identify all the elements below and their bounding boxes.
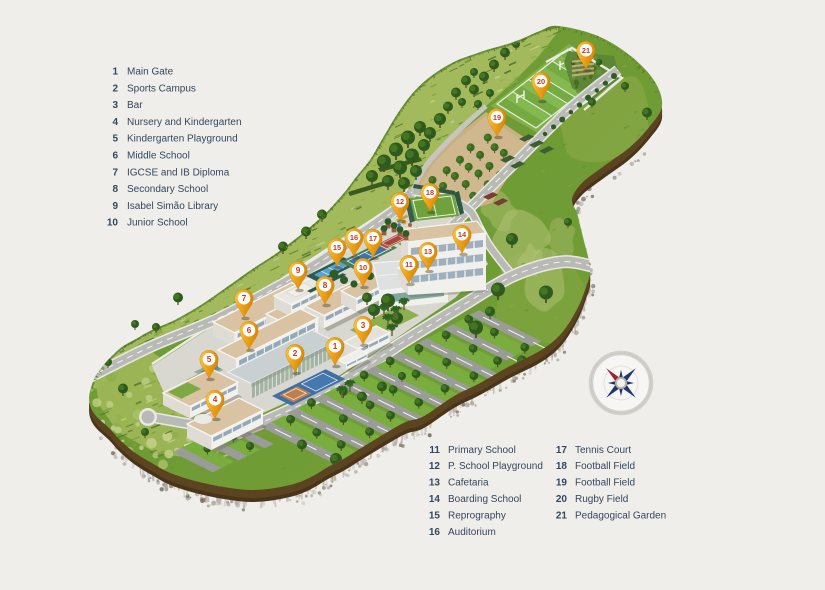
svg-text:3: 3 — [112, 100, 118, 111]
svg-text:15: 15 — [429, 510, 441, 521]
svg-text:Nursery and Kindergarten: Nursery and Kindergarten — [127, 117, 242, 128]
svg-text:9: 9 — [112, 201, 118, 212]
svg-text:17: 17 — [556, 445, 568, 456]
svg-text:18: 18 — [426, 188, 434, 197]
svg-text:10: 10 — [107, 218, 119, 229]
svg-text:Middle School: Middle School — [127, 151, 190, 162]
svg-text:Football Field: Football Field — [575, 478, 635, 489]
svg-text:Secondary School: Secondary School — [127, 184, 208, 195]
svg-text:19: 19 — [493, 113, 501, 122]
svg-text:1: 1 — [333, 342, 338, 351]
svg-text:15: 15 — [333, 243, 341, 252]
svg-text:4: 4 — [112, 117, 118, 128]
svg-text:Boarding School: Boarding School — [448, 494, 521, 505]
svg-text:IGCSE and IB Diploma: IGCSE and IB Diploma — [127, 167, 230, 178]
svg-text:16: 16 — [429, 527, 441, 538]
svg-text:Reprography: Reprography — [448, 510, 506, 521]
svg-text:Kindergarten Playground: Kindergarten Playground — [127, 134, 238, 145]
svg-text:Rugby Field: Rugby Field — [575, 494, 628, 505]
svg-text:P. School Playground: P. School Playground — [448, 461, 543, 472]
svg-text:1: 1 — [112, 67, 118, 78]
svg-text:Primary School: Primary School — [448, 445, 516, 456]
svg-text:Tennis Court: Tennis Court — [575, 445, 631, 456]
svg-text:Auditorium: Auditorium — [448, 527, 496, 538]
svg-text:7: 7 — [112, 167, 118, 178]
svg-text:4: 4 — [213, 395, 218, 404]
svg-text:Football Field: Football Field — [575, 461, 635, 472]
svg-text:2: 2 — [293, 349, 298, 358]
svg-text:14: 14 — [429, 494, 441, 505]
svg-text:21: 21 — [556, 510, 568, 521]
svg-text:20: 20 — [556, 494, 568, 505]
svg-text:3: 3 — [361, 321, 366, 330]
svg-text:12: 12 — [396, 197, 404, 206]
svg-text:20: 20 — [537, 77, 545, 86]
svg-text:Junior School: Junior School — [127, 218, 188, 229]
svg-text:Sports Campus: Sports Campus — [127, 83, 196, 94]
svg-text:Cafetaria: Cafetaria — [448, 478, 489, 489]
svg-text:11: 11 — [405, 260, 413, 269]
svg-text:21: 21 — [582, 46, 590, 55]
svg-text:7: 7 — [242, 294, 247, 303]
svg-text:18: 18 — [556, 461, 568, 472]
svg-text:5: 5 — [112, 134, 118, 145]
svg-text:14: 14 — [458, 230, 467, 239]
svg-text:Isabel Simão Library: Isabel Simão Library — [127, 201, 218, 212]
svg-text:8: 8 — [323, 281, 328, 290]
svg-text:9: 9 — [296, 266, 301, 275]
svg-text:8: 8 — [112, 184, 118, 195]
svg-text:16: 16 — [350, 233, 358, 242]
svg-text:12: 12 — [429, 461, 441, 472]
svg-text:6: 6 — [112, 151, 118, 162]
svg-text:5: 5 — [207, 355, 212, 364]
svg-text:Pedagogical Garden: Pedagogical Garden — [575, 510, 666, 521]
svg-text:19: 19 — [556, 478, 568, 489]
svg-text:10: 10 — [359, 263, 367, 272]
svg-text:2: 2 — [112, 83, 118, 94]
svg-text:13: 13 — [424, 247, 432, 256]
svg-text:Main Gate: Main Gate — [127, 67, 174, 78]
svg-text:17: 17 — [369, 234, 377, 243]
svg-text:6: 6 — [247, 326, 252, 335]
svg-text:11: 11 — [429, 445, 440, 456]
svg-text:Bar: Bar — [127, 100, 143, 111]
svg-text:13: 13 — [429, 478, 441, 489]
